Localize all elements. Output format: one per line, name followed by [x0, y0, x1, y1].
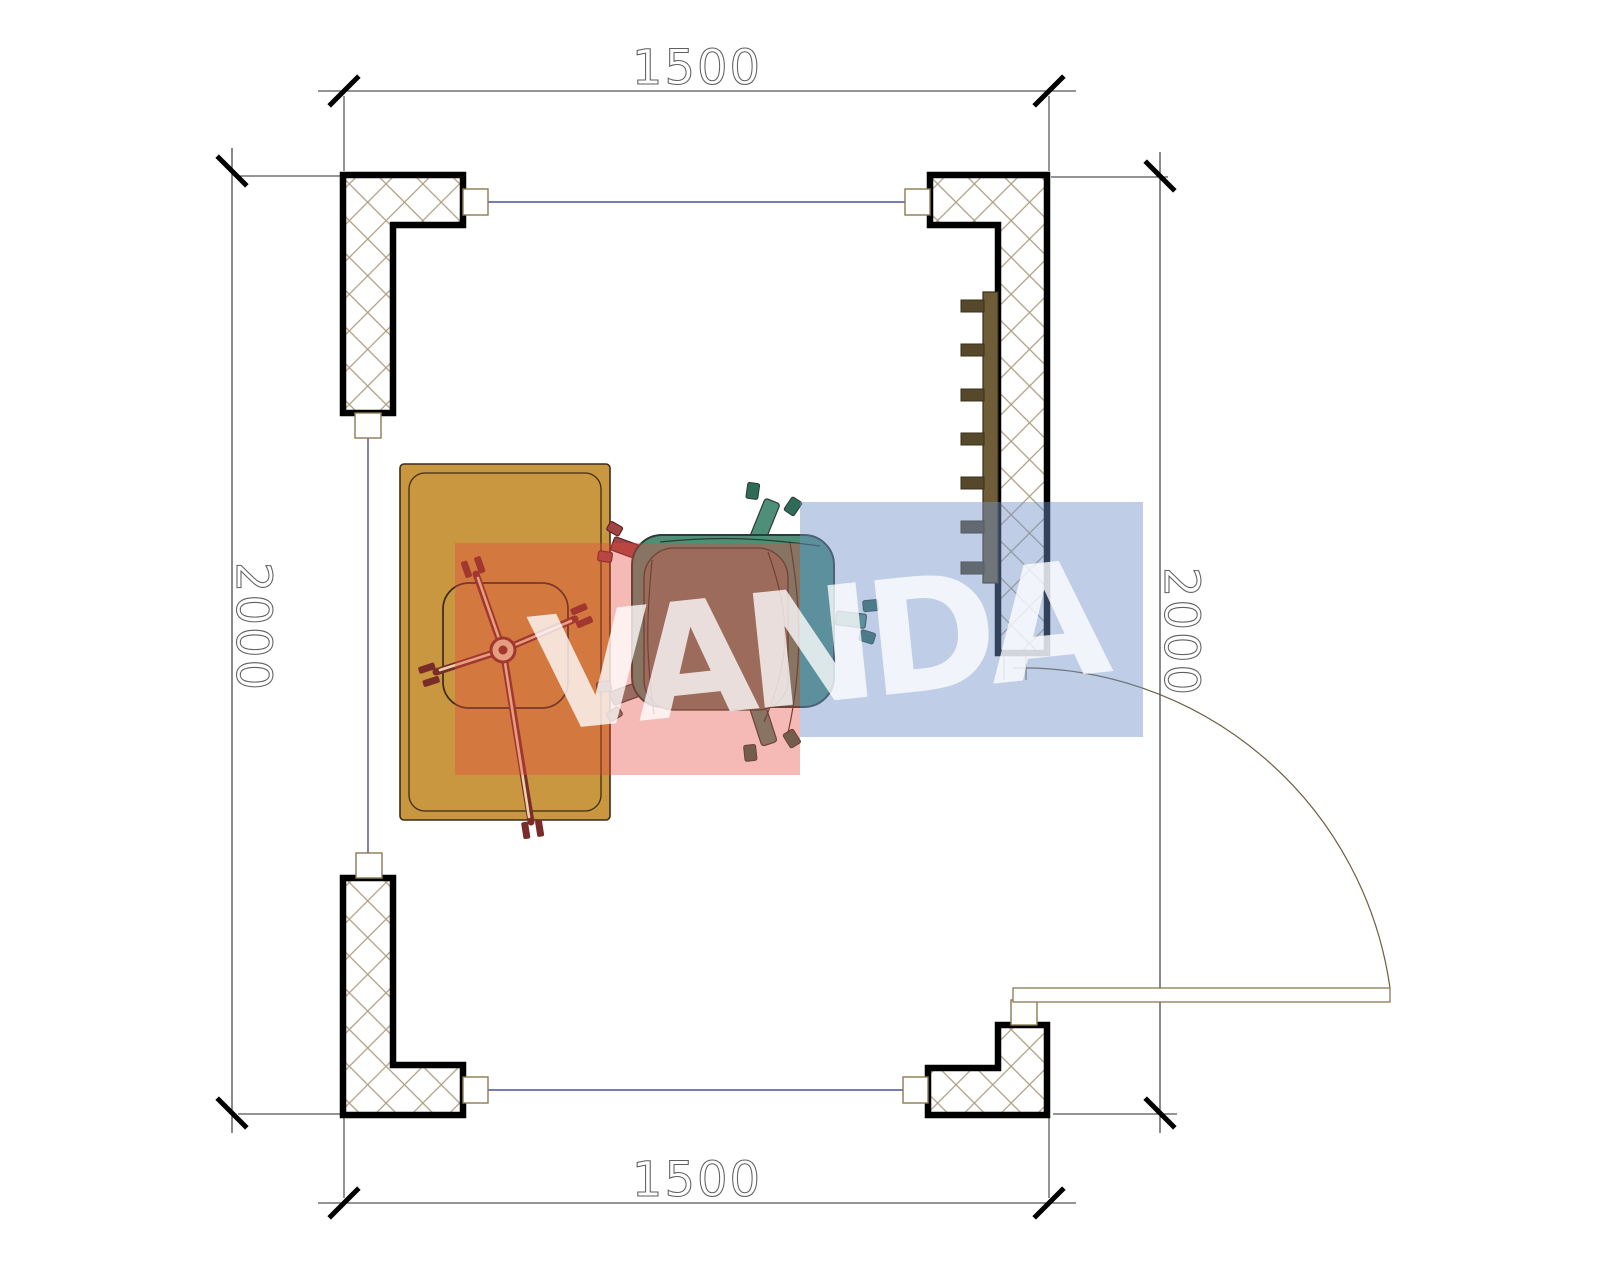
connector-box [1011, 1000, 1037, 1025]
wall-pier-bottom-left [343, 853, 488, 1115]
connector-box [356, 853, 382, 878]
dimension-bottom: 1500 [318, 1118, 1076, 1220]
radiator-fin [961, 344, 984, 356]
wall-pier-top-left [343, 175, 488, 438]
connector-box [463, 1077, 488, 1103]
connector-box [903, 1077, 928, 1103]
connector-box [463, 189, 488, 215]
dimension-top: 1500 [318, 40, 1076, 171]
wall-hatch [343, 878, 463, 1115]
radiator-fin [961, 389, 984, 401]
connector-box [905, 189, 930, 215]
dimension-top-label: 1500 [632, 40, 762, 96]
wall-hatch [343, 175, 463, 413]
floor-plan-drawing: 1500 1500 2000 2000 [0, 0, 1600, 1280]
dimension-left: 2000 [215, 148, 341, 1133]
radiator-fin [961, 300, 984, 312]
wall-hatch [928, 1025, 1047, 1115]
floor-plan-canvas: 1500 1500 2000 2000 [0, 0, 1600, 1280]
dimension-left-label: 2000 [225, 562, 281, 692]
dimension-bottom-label: 1500 [632, 1152, 762, 1208]
radiator-fin [961, 433, 984, 445]
door-leaf [1013, 988, 1390, 1002]
radiator-fin [961, 477, 984, 489]
connector-box [355, 413, 381, 438]
dimension-right-label: 2000 [1153, 567, 1209, 697]
wall-pier-bottom-right [903, 1000, 1047, 1115]
